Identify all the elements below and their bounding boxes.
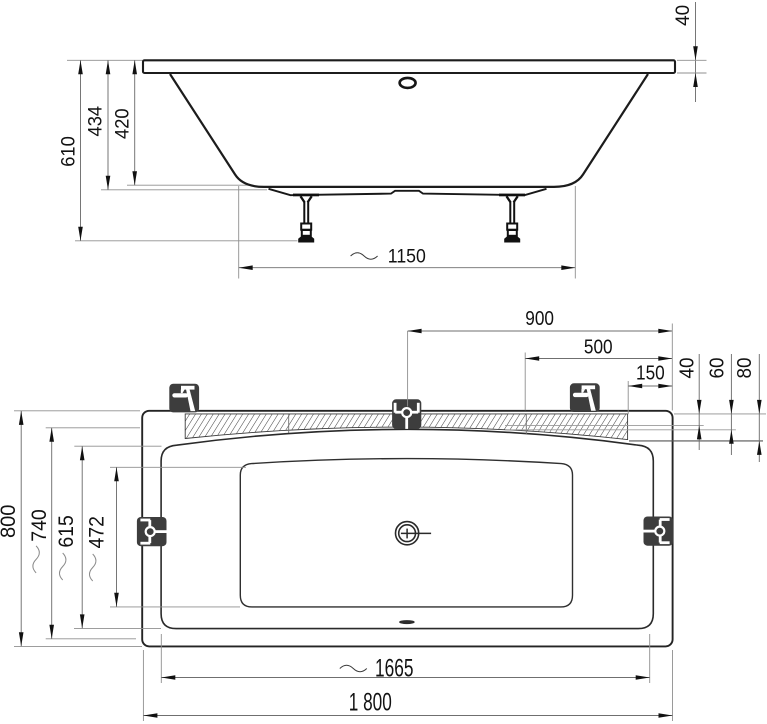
svg-text:80: 80 [734, 358, 756, 379]
svg-text:60: 60 [707, 358, 729, 379]
svg-text:740: 740 [28, 509, 51, 542]
svg-text:500: 500 [584, 337, 613, 359]
svg-text:150: 150 [636, 363, 665, 385]
svg-text:615: 615 [55, 515, 78, 548]
svg-text:1665: 1665 [375, 654, 414, 682]
svg-text:610: 610 [57, 136, 79, 167]
svg-text:434: 434 [84, 106, 106, 137]
svg-text:1 800: 1 800 [349, 688, 392, 716]
svg-text:800: 800 [0, 505, 20, 539]
svg-text:40: 40 [672, 5, 694, 26]
svg-text:1150: 1150 [388, 246, 426, 267]
svg-text:420: 420 [111, 108, 133, 139]
svg-text:40: 40 [677, 358, 699, 379]
svg-text:900: 900 [525, 308, 554, 330]
svg-text:472: 472 [85, 516, 108, 549]
